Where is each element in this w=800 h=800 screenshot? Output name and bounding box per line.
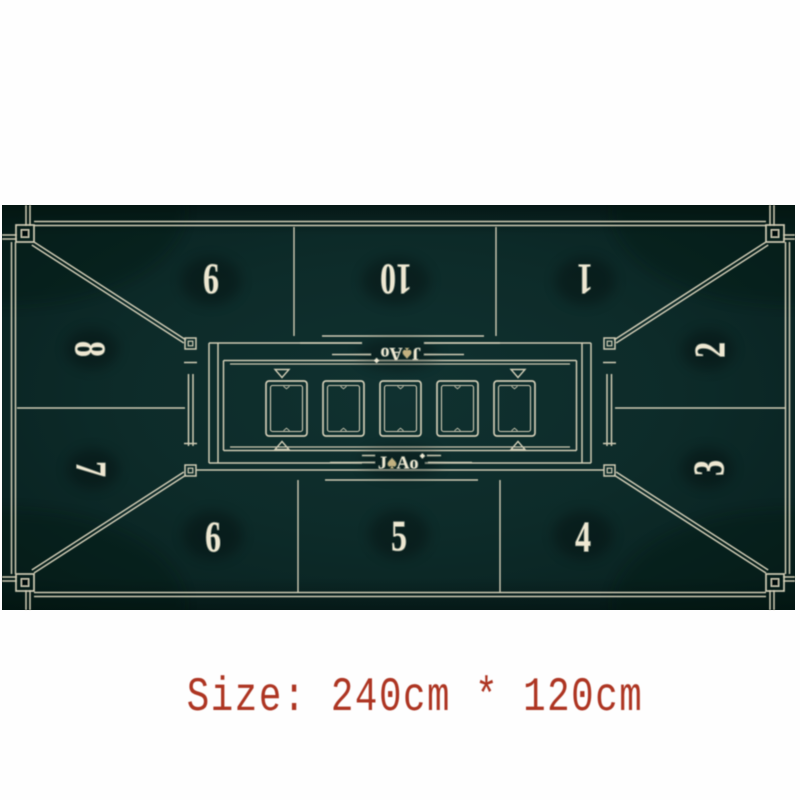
svg-text:Size: 240cm * 120cm: Size: 240cm * 120cm xyxy=(187,671,644,725)
svg-text:10: 10 xyxy=(380,255,412,304)
svg-text:4: 4 xyxy=(575,513,591,562)
svg-text:7: 7 xyxy=(67,461,116,477)
svg-text:6: 6 xyxy=(205,513,221,562)
svg-text:9: 9 xyxy=(203,255,219,304)
svg-text:8: 8 xyxy=(66,341,115,357)
svg-text:Ao: Ao xyxy=(397,453,419,473)
svg-text:J: J xyxy=(378,453,387,473)
svg-text:Ao: Ao xyxy=(381,344,403,364)
svg-text:5: 5 xyxy=(391,512,407,561)
svg-text:1: 1 xyxy=(577,255,593,304)
svg-text:J: J xyxy=(412,344,421,364)
svg-text:3: 3 xyxy=(685,460,734,476)
svg-text:2: 2 xyxy=(686,342,735,358)
